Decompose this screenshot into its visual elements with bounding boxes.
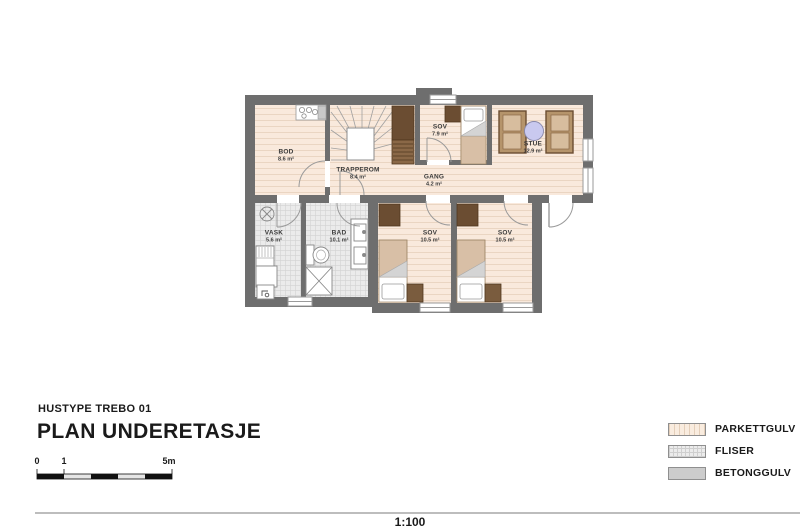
- nightstand: [485, 284, 501, 302]
- room-label-sov2: SOV 10.5 m²: [496, 230, 515, 245]
- legend-item-fliser: FLISER: [668, 445, 798, 457]
- laundry-sink: [257, 285, 274, 299]
- room-label-bod: BOD 8.6 m²: [278, 149, 294, 164]
- bed: [457, 240, 485, 302]
- scale-bar: [37, 469, 172, 479]
- bed: [379, 240, 407, 302]
- room-label-stue: STUE 12.9 m²: [524, 141, 543, 156]
- sofa-left: [499, 111, 526, 153]
- footer-divider: [35, 512, 800, 514]
- scale-label-5m: 5m: [162, 456, 175, 466]
- room-label-bad: BAD 10.1 m²: [330, 230, 349, 245]
- legend-item-betonggulv: BETONGGULV: [668, 467, 798, 479]
- round-table: [525, 122, 544, 141]
- page-title: PLAN UNDERETASJE: [37, 420, 261, 444]
- parquet-swatch: [668, 423, 706, 436]
- wardrobe: [457, 204, 478, 226]
- room-label-vask: VASK 5.6 m²: [265, 230, 283, 245]
- legend: PARKETTGULV FLISER BETONGGULV: [668, 423, 798, 489]
- vanity-sinks: [351, 219, 368, 269]
- legend-item-parkettgulv: PARKETTGULV: [668, 423, 798, 435]
- sofa-right: [546, 111, 573, 153]
- tiles-swatch: [668, 445, 706, 458]
- scale-text: 1:100: [395, 515, 426, 529]
- shower: [306, 267, 332, 295]
- wardrobe: [445, 106, 462, 122]
- stair-landing: [347, 128, 374, 160]
- room-label-trapperom: TRAPPEROM 8.4 m²: [336, 167, 379, 182]
- washing-machine: [256, 246, 274, 266]
- room-label-sov-small: SOV 7.9 m²: [432, 124, 448, 139]
- bed: [461, 106, 486, 164]
- counter: [256, 266, 277, 287]
- project-name: HUSTYPE TREBO 01: [38, 403, 152, 415]
- understair-cabinet: [392, 106, 414, 140]
- nightstand: [407, 284, 423, 302]
- scale-label-1: 1: [61, 456, 66, 466]
- room-label-gang: GANG 4.2 m²: [424, 174, 444, 189]
- scale-label-0: 0: [34, 456, 39, 466]
- ladder: [392, 140, 414, 164]
- concrete-swatch: [668, 467, 706, 480]
- bod-counter: [296, 105, 326, 120]
- toilet: [306, 245, 329, 265]
- entry-door: [549, 203, 573, 227]
- room-label-sov1: SOV 10.5 m²: [421, 230, 440, 245]
- wardrobe: [379, 204, 400, 226]
